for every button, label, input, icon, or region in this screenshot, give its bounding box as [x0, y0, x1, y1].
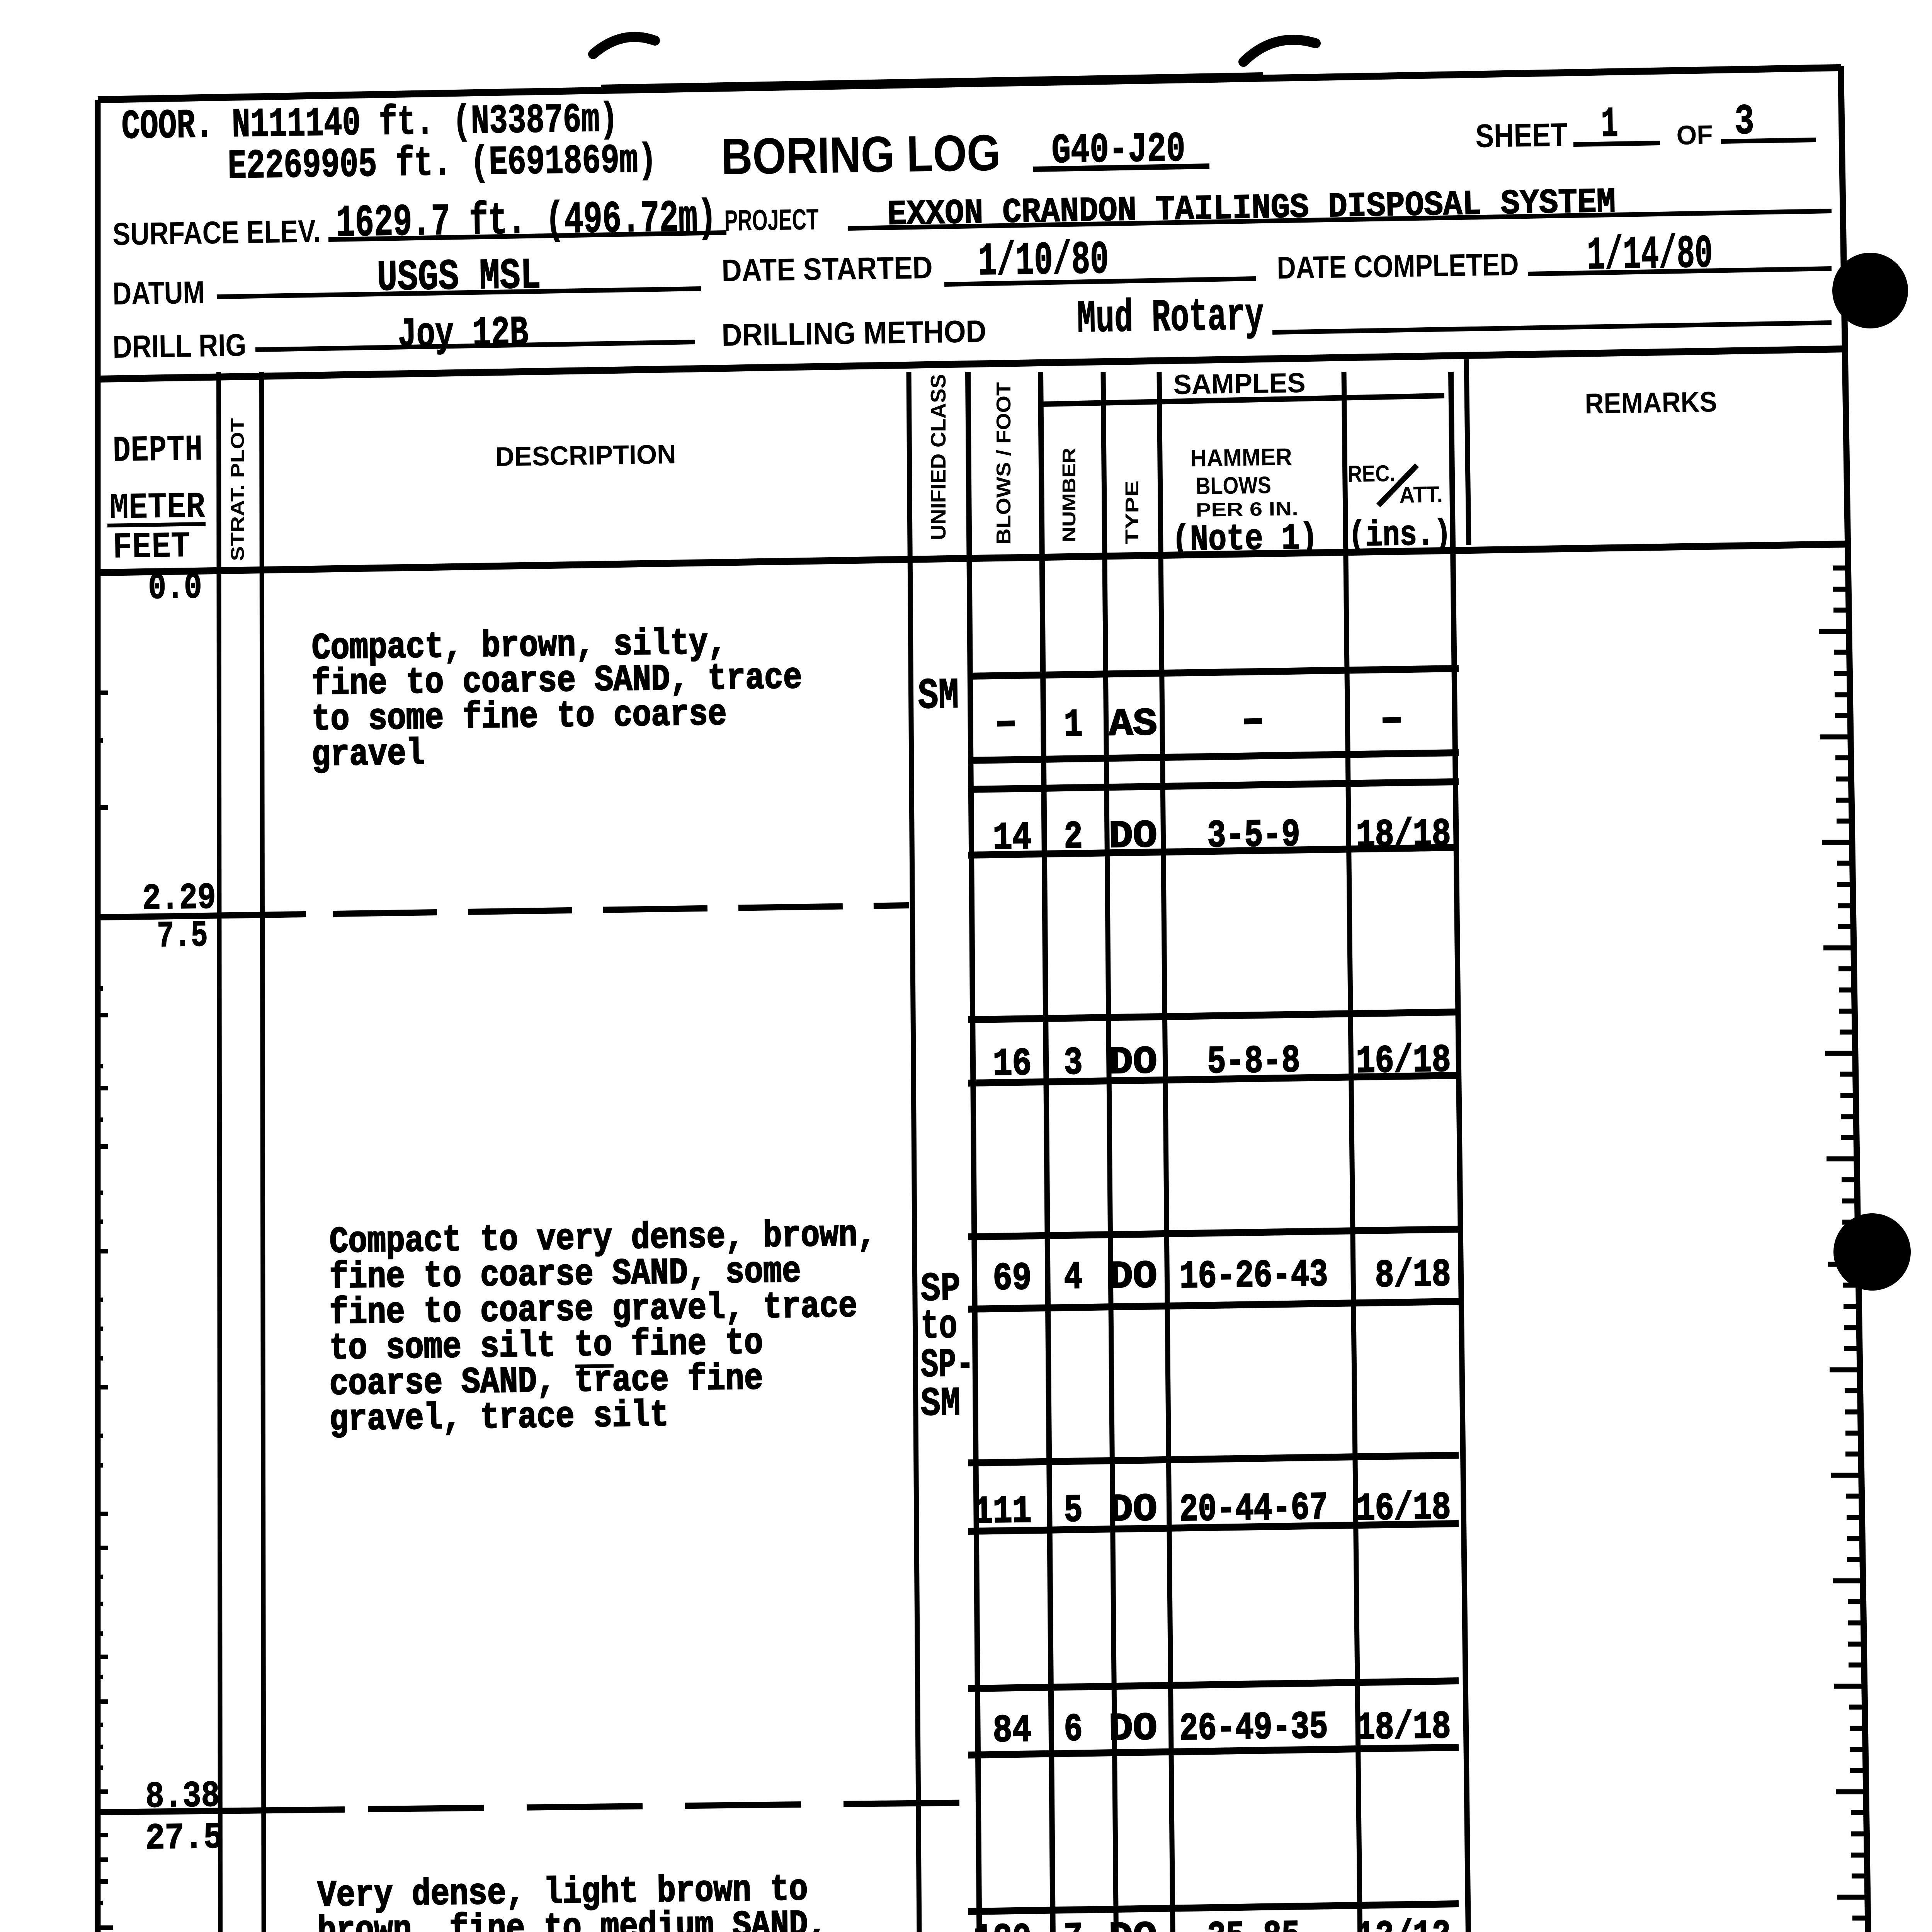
svg-text:REC.: REC.	[1347, 460, 1395, 487]
svg-text:111: 111	[973, 1490, 1032, 1534]
svg-text:3-5-9: 3-5-9	[1207, 813, 1301, 858]
svg-text:4: 4	[1064, 1256, 1083, 1300]
svg-text:3: 3	[1064, 1042, 1083, 1086]
svg-text:HAMMER: HAMMER	[1190, 444, 1292, 472]
svg-text:E2269905 ft. (E691869m): E2269905 ft. (E691869m)	[228, 138, 657, 190]
svg-text:14: 14	[993, 816, 1032, 861]
svg-text:SM: SM	[918, 671, 959, 721]
svg-text:OF: OF	[1676, 120, 1713, 150]
svg-text:BORING LOG: BORING LOG	[721, 124, 1001, 185]
svg-text:BLOWS / FOOT: BLOWS / FOOT	[993, 382, 1015, 544]
svg-text:16/18: 16/18	[1356, 1486, 1451, 1531]
svg-text:5-8-8: 5-8-8	[1207, 1039, 1301, 1084]
svg-text:2: 2	[1064, 816, 1083, 860]
svg-text:1: 1	[1064, 704, 1083, 748]
svg-text:12/12: 12/12	[1356, 1914, 1451, 1932]
svg-text:120: 120	[973, 1918, 1032, 1932]
svg-text:16/18: 16/18	[1356, 1039, 1451, 1084]
svg-text:NUMBER: NUMBER	[1059, 448, 1080, 543]
svg-text:18/18: 18/18	[1356, 813, 1451, 858]
svg-text:DATUM: DATUM	[112, 275, 205, 311]
svg-text:DO: DO	[1109, 815, 1158, 859]
svg-text:UNIFIED CLASS: UNIFIED CLASS	[926, 374, 950, 540]
svg-text:gravel: gravel	[311, 733, 425, 776]
svg-text:DATE COMPLETED: DATE COMPLETED	[1277, 247, 1519, 286]
svg-text:SM: SM	[920, 1381, 961, 1427]
svg-text:DRILL RIG: DRILL RIG	[112, 328, 247, 365]
svg-text:6: 6	[1064, 1708, 1083, 1752]
svg-text:26-49-35: 26-49-35	[1179, 1706, 1328, 1751]
svg-text:8/18: 8/18	[1375, 1253, 1451, 1298]
svg-text:27.5: 27.5	[145, 1817, 223, 1860]
svg-text:DO: DO	[1109, 1041, 1158, 1085]
svg-text:PER 6 IN.: PER 6 IN.	[1196, 498, 1298, 521]
svg-text:84: 84	[993, 1709, 1032, 1753]
svg-text:SAMPLES: SAMPLES	[1173, 367, 1306, 400]
svg-text:AS: AS	[1109, 702, 1158, 747]
svg-text:0.0: 0.0	[148, 567, 202, 609]
svg-text:18/18: 18/18	[1356, 1706, 1451, 1750]
svg-text:STRAT. PLOT: STRAT. PLOT	[228, 418, 248, 561]
svg-text:DATE STARTED: DATE STARTED	[721, 250, 933, 288]
svg-text:DO: DO	[1109, 1488, 1158, 1532]
svg-text:DO: DO	[1109, 1916, 1158, 1932]
svg-text:7.5: 7.5	[157, 915, 208, 957]
svg-text:DESCRIPTION: DESCRIPTION	[495, 439, 676, 472]
svg-text:ATT.: ATT.	[1399, 481, 1443, 508]
svg-text:5: 5	[1064, 1489, 1083, 1533]
svg-text:16: 16	[993, 1043, 1032, 1087]
svg-text:REMARKS: REMARKS	[1585, 386, 1717, 420]
svg-text:69: 69	[993, 1257, 1032, 1301]
svg-text:SHEET: SHEET	[1475, 116, 1568, 155]
svg-text:DRILLING METHOD: DRILLING METHOD	[721, 314, 986, 353]
svg-text:BLOWS: BLOWS	[1196, 472, 1271, 500]
svg-text:(Note 1): (Note 1)	[1172, 517, 1318, 561]
svg-text:TYPE: TYPE	[1122, 481, 1143, 544]
svg-text:7: 7	[1064, 1917, 1083, 1932]
svg-text:16-26-43: 16-26-43	[1179, 1253, 1328, 1299]
svg-text:Joy 12B: Joy 12B	[398, 310, 529, 359]
svg-text:FEET: FEET	[112, 526, 191, 569]
svg-text:PROJECT: PROJECT	[724, 203, 819, 237]
svg-text:DO: DO	[1109, 1707, 1158, 1752]
svg-text:gravel, trace silt: gravel, trace silt	[329, 1395, 669, 1441]
svg-text:35-85: 35-85	[1207, 1915, 1301, 1932]
svg-text:Mud Rotary: Mud Rotary	[1077, 291, 1264, 345]
svg-text:DO: DO	[1109, 1255, 1158, 1299]
svg-text:(ins.): (ins.)	[1348, 514, 1452, 556]
svg-text:DEPTH: DEPTH	[112, 429, 203, 472]
svg-text:SURFACE ELEV.: SURFACE ELEV.	[112, 214, 321, 252]
svg-text:20-44-67: 20-44-67	[1179, 1486, 1328, 1532]
